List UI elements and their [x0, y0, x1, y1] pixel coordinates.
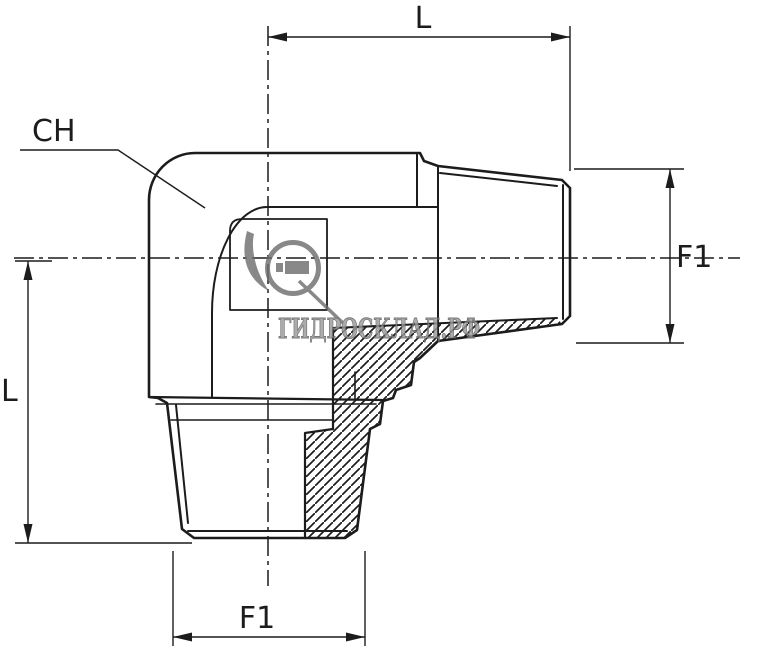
arrowhead-down — [24, 524, 33, 543]
centerlines — [14, 26, 740, 586]
arrowhead-up — [24, 261, 33, 280]
arrowhead-up — [666, 169, 675, 188]
dimension-bottom-thread: F1 — [173, 551, 365, 646]
arrowhead-right — [551, 33, 570, 42]
arrowhead-right — [346, 633, 365, 642]
watermark-logo-drop-icon — [244, 231, 269, 291]
arrowhead-left — [173, 633, 192, 642]
watermark-logo-valve-icon — [285, 261, 309, 274]
hex-callout: CH — [20, 114, 205, 208]
arrowhead-left — [268, 33, 287, 42]
hex-label-CH: CH — [32, 114, 76, 149]
dimension-label-left-L: L — [1, 374, 18, 409]
technical-drawing: L F1 L F1 CH ГИДРОСКЛАД.Р — [0, 0, 757, 650]
section-hatching — [305, 318, 562, 538]
dimension-label-top-L: L — [415, 1, 432, 36]
arrowhead-down — [666, 324, 675, 343]
drawing-canvas: L F1 L F1 CH ГИДРОСКЛАД.Р — [0, 0, 757, 650]
leader-line — [20, 150, 205, 208]
dimension-top-length: L — [268, 1, 570, 171]
dimension-label-bottom-F1: F1 — [239, 601, 275, 636]
watermark-text: ГИДРОСКЛАД.РФ — [278, 314, 480, 345]
watermark: ГИДРОСКЛАД.РФ — [244, 231, 480, 345]
dimension-right-thread: F1 — [574, 169, 712, 343]
section-cut-area — [305, 318, 562, 538]
watermark-logo-valve-stem-icon — [276, 263, 283, 272]
dimension-label-right-F1: F1 — [676, 240, 712, 275]
inner-corner-arc — [212, 207, 267, 313]
bottom-port-thread-root-left — [176, 405, 188, 523]
right-port-thread-root-top — [440, 173, 557, 186]
